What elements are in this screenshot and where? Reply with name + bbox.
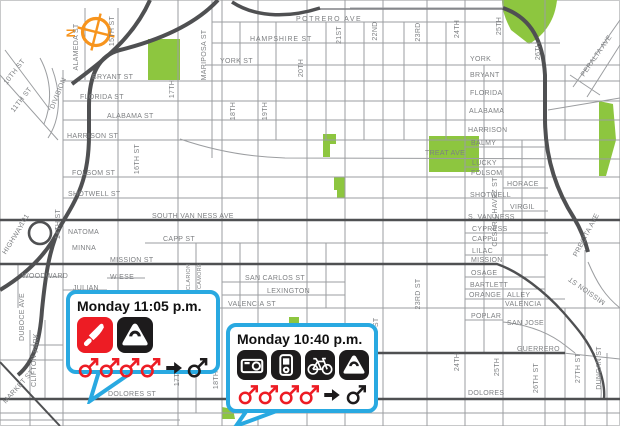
male-attacker-icon bbox=[77, 356, 100, 380]
street-label: SOUTH VAN NESS AVE bbox=[152, 213, 234, 220]
male-attacker-icon bbox=[278, 383, 300, 407]
street-label: MARIPOSA ST bbox=[201, 29, 208, 80]
street-label: CLARION bbox=[186, 264, 192, 291]
street-label: BRYANT bbox=[470, 72, 500, 79]
street-label: TREAT AVE bbox=[425, 150, 465, 157]
incident-2-actors bbox=[237, 383, 367, 407]
street-label: HIGHWAY bbox=[2, 223, 26, 256]
incident-1-stolen-items bbox=[77, 317, 209, 353]
park-right-strip bbox=[599, 101, 616, 176]
street-label: 15TH ST bbox=[109, 16, 116, 47]
street-label: YORK ST bbox=[220, 58, 253, 65]
street-label: 19TH bbox=[262, 102, 269, 120]
media-player-icon bbox=[271, 350, 301, 380]
street-label: ALAMEDA ST bbox=[73, 23, 80, 70]
street-label: 23RD bbox=[415, 22, 422, 41]
street-label: CAPP ST bbox=[163, 236, 195, 243]
street-label: SAN CARLOS ST bbox=[245, 275, 305, 282]
street-label: PERALTA AVE bbox=[580, 34, 614, 78]
street-label: 27TH ST bbox=[575, 353, 582, 384]
park-franklin-square bbox=[148, 39, 180, 80]
street-label: VALENCIA ST bbox=[228, 301, 276, 308]
street-label: 22ND bbox=[372, 21, 379, 40]
street-label: GUERRERO bbox=[517, 346, 560, 353]
street-label: 14TH ST bbox=[55, 209, 62, 240]
male-attacker-icon bbox=[118, 356, 141, 380]
street-label: HAMPSHIRE ST bbox=[250, 36, 312, 43]
street-label: FLORIDA ST bbox=[80, 94, 124, 101]
park-small-a bbox=[323, 134, 336, 157]
male-attacker-icon bbox=[298, 383, 320, 407]
incident-1-time: Monday 11:05 p.m. bbox=[77, 298, 209, 314]
street-label: 18TH bbox=[230, 102, 237, 120]
street-label: CAPP bbox=[472, 236, 492, 243]
street-label: SAN JOSE bbox=[507, 320, 544, 327]
street-label: BALMY bbox=[471, 140, 496, 147]
street-label: 16TH ST bbox=[134, 144, 141, 175]
male-attacker-icon bbox=[237, 383, 259, 407]
street-label: 26TH bbox=[535, 42, 542, 60]
male-victim-icon bbox=[186, 356, 209, 380]
street-label: BARTLETT bbox=[470, 282, 508, 289]
street-label: ALABAMA bbox=[469, 108, 504, 115]
street-label: 10TH ST bbox=[3, 58, 27, 86]
arrow-icon bbox=[323, 385, 342, 405]
street-label: 25TH bbox=[494, 358, 501, 376]
crime-map-infographic: N POTRERO AVEHAMPSHIRE STYORK STBRYANT S… bbox=[0, 0, 620, 426]
incident-1-actors bbox=[77, 356, 209, 380]
park-top-right bbox=[502, 0, 557, 44]
street-label: FOLSOM bbox=[471, 170, 502, 177]
incident-callout-2: Monday 10:40 p.m. bbox=[226, 323, 378, 413]
purse-icon bbox=[339, 350, 369, 380]
street-label: ORANGE bbox=[469, 292, 501, 299]
street-label: POTRERO AVE bbox=[296, 16, 362, 23]
street-label: CESAR CHAVEZ ST bbox=[492, 177, 499, 247]
street-label: BRYANT ST bbox=[92, 74, 134, 81]
street-label: FLORIDA bbox=[470, 90, 502, 97]
street-label: ALABAMA ST bbox=[107, 113, 154, 120]
street-label: DUBOCE AVE bbox=[19, 293, 26, 341]
street-label: MISSION ST bbox=[110, 257, 154, 264]
street-label: HARRISON bbox=[468, 127, 507, 134]
bicycle-icon bbox=[305, 350, 335, 380]
street-label: LUCKY bbox=[472, 160, 497, 167]
knife-icon bbox=[77, 317, 113, 353]
street-label: 23RD ST bbox=[415, 278, 422, 309]
male-attacker-icon bbox=[257, 383, 279, 407]
street-label: LEXINGTON bbox=[267, 288, 310, 295]
street-label: 24TH bbox=[454, 20, 461, 38]
street-label: HORACE bbox=[507, 181, 539, 188]
street-label: LILAC bbox=[472, 248, 493, 255]
street-label: YORK bbox=[470, 56, 491, 63]
male-attacker-icon bbox=[139, 356, 162, 380]
arrow-icon bbox=[165, 358, 184, 378]
street-label: 17TH bbox=[169, 80, 176, 98]
purse-icon bbox=[117, 317, 153, 353]
street-label: SHOTWELL bbox=[470, 192, 511, 199]
street-label: SHOTWELL ST bbox=[68, 191, 121, 198]
male-victim-icon bbox=[345, 383, 367, 407]
street-label: HARRISON ST bbox=[67, 133, 119, 140]
park-small-b bbox=[334, 177, 345, 198]
street-label: OSAGE bbox=[471, 270, 497, 277]
incident-2-time: Monday 10:40 p.m. bbox=[237, 331, 367, 347]
male-attacker-icon bbox=[98, 356, 121, 380]
street-label: 26TH ST bbox=[533, 363, 540, 394]
street-label: DUNCAN ST bbox=[596, 346, 603, 390]
incident-2-stolen-items bbox=[237, 350, 367, 380]
street-label: WIESE bbox=[110, 274, 134, 281]
street-label: 25TH bbox=[496, 17, 503, 35]
camera-icon bbox=[237, 350, 267, 380]
street-label: DOLORES bbox=[468, 390, 504, 397]
street-label: MINNA bbox=[72, 245, 96, 252]
street-label: PARK bbox=[33, 333, 40, 353]
street-label: VALENCIA bbox=[505, 301, 542, 308]
street-label: 20TH bbox=[298, 59, 305, 77]
street-label: ALLEY bbox=[507, 292, 530, 299]
street-label: CYPRESS bbox=[472, 226, 508, 233]
street-label: POPLAR bbox=[471, 313, 501, 320]
incident-callout-1: Monday 11:05 p.m. bbox=[66, 290, 220, 374]
street-label: 21ST bbox=[336, 26, 343, 44]
street-label: 24TH bbox=[454, 353, 461, 371]
street-label: MISSION ST bbox=[567, 275, 607, 306]
street-label: FOLSOM ST bbox=[72, 170, 116, 177]
street-label: VIRGIL bbox=[510, 204, 535, 211]
street-label: MISSION bbox=[471, 257, 503, 264]
street-label: NATOMA bbox=[68, 229, 99, 236]
street-label: WOODWARD bbox=[22, 273, 68, 280]
